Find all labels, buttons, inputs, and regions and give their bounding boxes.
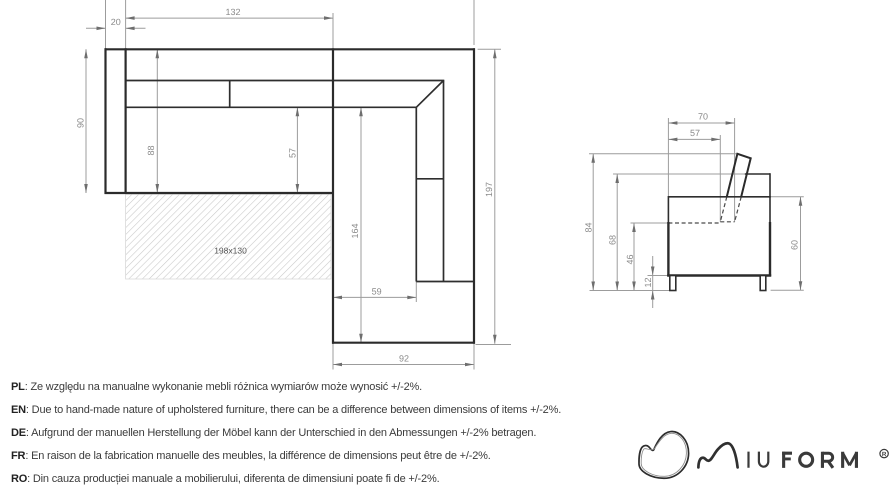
svg-text:92: 92 xyxy=(399,354,409,364)
svg-text:197: 197 xyxy=(484,182,494,197)
svg-text:132: 132 xyxy=(225,7,240,17)
svg-text:46: 46 xyxy=(625,254,635,264)
svg-text:164: 164 xyxy=(350,223,360,238)
svg-text:57: 57 xyxy=(690,128,700,138)
svg-text:57: 57 xyxy=(288,148,298,158)
svg-text:88: 88 xyxy=(146,145,156,155)
svg-text:60: 60 xyxy=(790,240,800,250)
svg-text:68: 68 xyxy=(608,235,618,245)
svg-text:R: R xyxy=(882,451,887,458)
svg-text:90: 90 xyxy=(76,118,86,128)
svg-text:198x130: 198x130 xyxy=(214,246,247,256)
svg-text:59: 59 xyxy=(372,286,382,296)
svg-text:12: 12 xyxy=(643,277,653,287)
svg-text:70: 70 xyxy=(698,112,708,122)
svg-text:84: 84 xyxy=(584,222,594,232)
svg-text:20: 20 xyxy=(111,17,121,27)
